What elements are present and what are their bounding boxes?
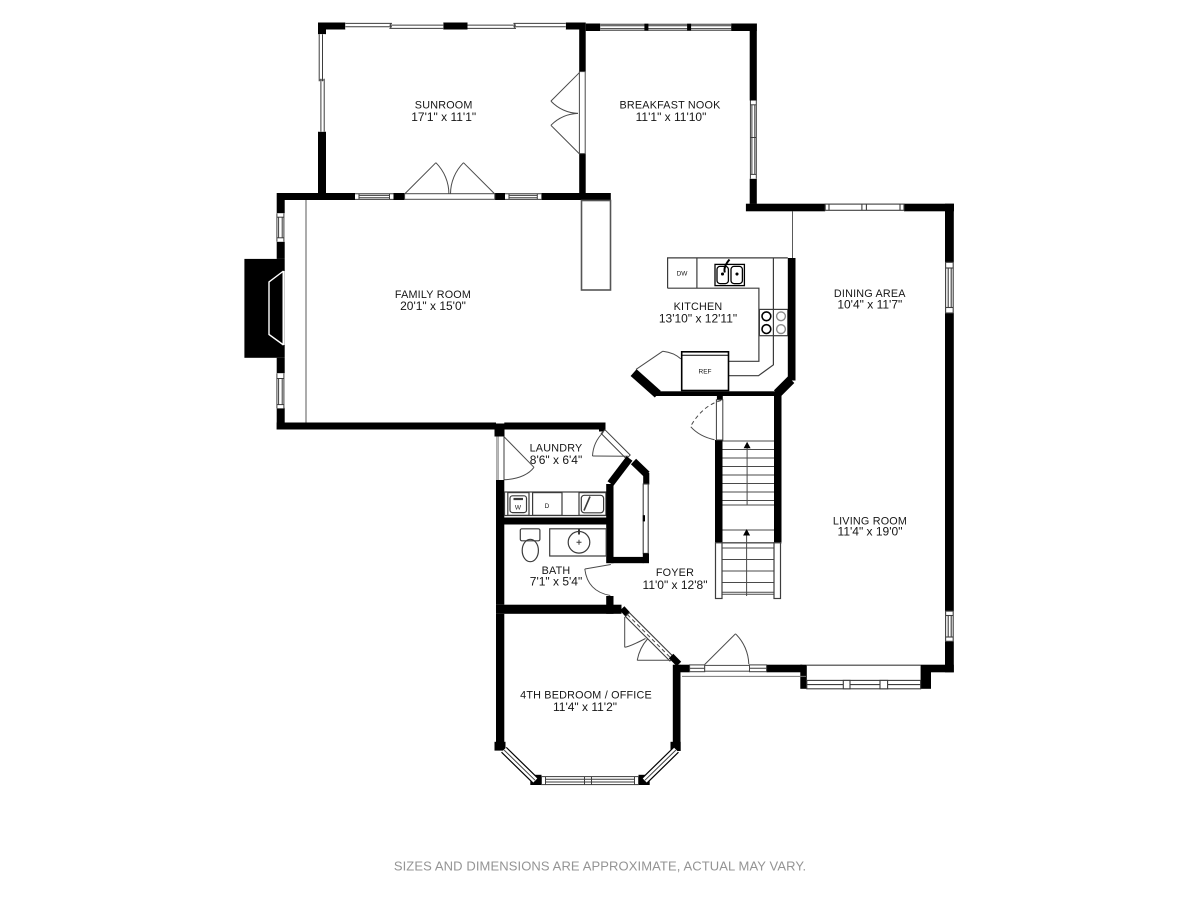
svg-text:7'1" x 5'4": 7'1" x 5'4" — [530, 575, 582, 589]
svg-text:SIZES AND DIMENSIONS ARE APPRO: SIZES AND DIMENSIONS ARE APPROXIMATE, AC… — [394, 859, 806, 874]
svg-text:20'1" x 15'0": 20'1" x 15'0" — [400, 299, 466, 313]
svg-text:11'0" x 12'8": 11'0" x 12'8" — [643, 578, 708, 592]
svg-text:11'4" x 19'0": 11'4" x 19'0" — [838, 525, 903, 539]
svg-text:8'6" x 6'4": 8'6" x 6'4" — [530, 453, 582, 467]
svg-text:D: D — [545, 503, 550, 510]
svg-text:13'10" x 12'11": 13'10" x 12'11" — [659, 312, 737, 326]
svg-text:11'4" x 11'2": 11'4" x 11'2" — [553, 700, 617, 714]
svg-text:10'4" x 11'7": 10'4" x 11'7" — [837, 298, 902, 312]
svg-text:17'1" x 11'1": 17'1" x 11'1" — [411, 110, 476, 124]
svg-text:DW: DW — [677, 271, 689, 278]
svg-text:REF: REF — [699, 369, 712, 376]
svg-text:11'1" x 11'10": 11'1" x 11'10" — [636, 110, 707, 124]
svg-text:W: W — [515, 505, 522, 512]
